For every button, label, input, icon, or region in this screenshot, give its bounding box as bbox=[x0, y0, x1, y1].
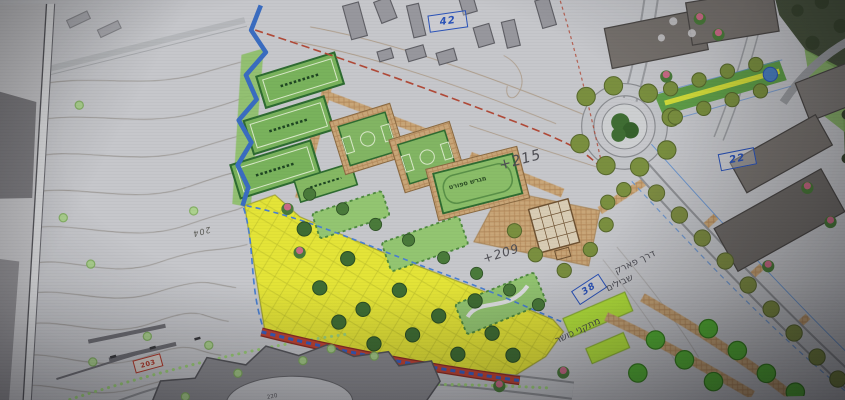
site-plan-photo: 42 22 38 +215 +209 204 203 220 מגרש ספור… bbox=[0, 0, 845, 400]
plan-drawing bbox=[0, 0, 845, 400]
building-label-220: 220 bbox=[266, 393, 278, 400]
map-canvas: 42 22 38 +215 +209 204 203 220 מגרש ספור… bbox=[0, 0, 845, 400]
